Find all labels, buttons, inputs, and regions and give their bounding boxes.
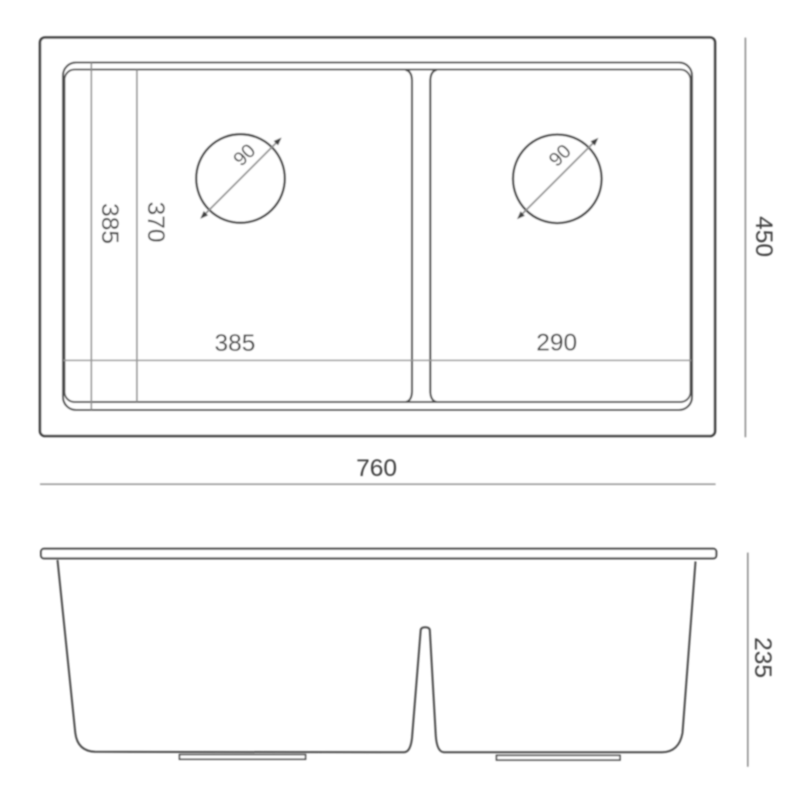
svg-text:385: 385 bbox=[96, 203, 123, 244]
svg-text:450: 450 bbox=[750, 216, 777, 257]
svg-text:760: 760 bbox=[356, 455, 397, 482]
svg-text:385: 385 bbox=[214, 330, 255, 357]
svg-text:370: 370 bbox=[142, 202, 169, 243]
svg-text:235: 235 bbox=[749, 637, 776, 678]
svg-text:290: 290 bbox=[536, 330, 577, 357]
